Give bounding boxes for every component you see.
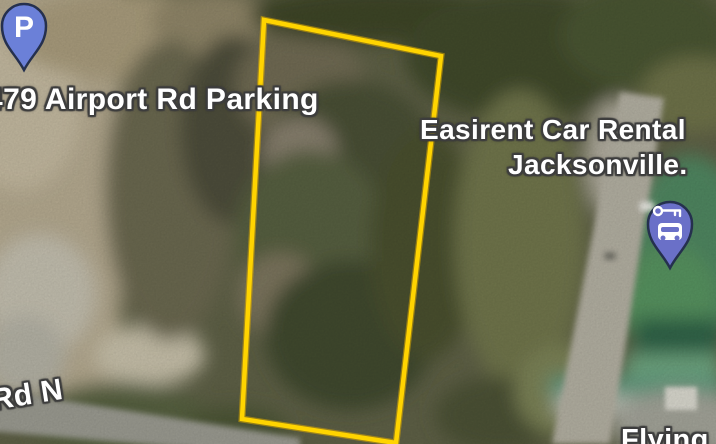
car-icon [658,223,682,241]
image-grain [0,0,716,444]
satellite-map-canvas[interactable]: P 479 Airport Rd Parking Easirent Car Re… [0,0,716,444]
poi-label-airport-rd-parking[interactable]: 479 Airport Rd Parking [0,83,319,117]
parking-pin-glyph: P [14,11,34,44]
poi-label-flying[interactable]: Flying [621,424,709,444]
poi-label-easirent-line2[interactable]: Jacksonville. [508,149,688,181]
poi-label-easirent-line1[interactable]: Easirent Car Rental [420,114,686,146]
satellite-imagery: P [0,0,716,444]
